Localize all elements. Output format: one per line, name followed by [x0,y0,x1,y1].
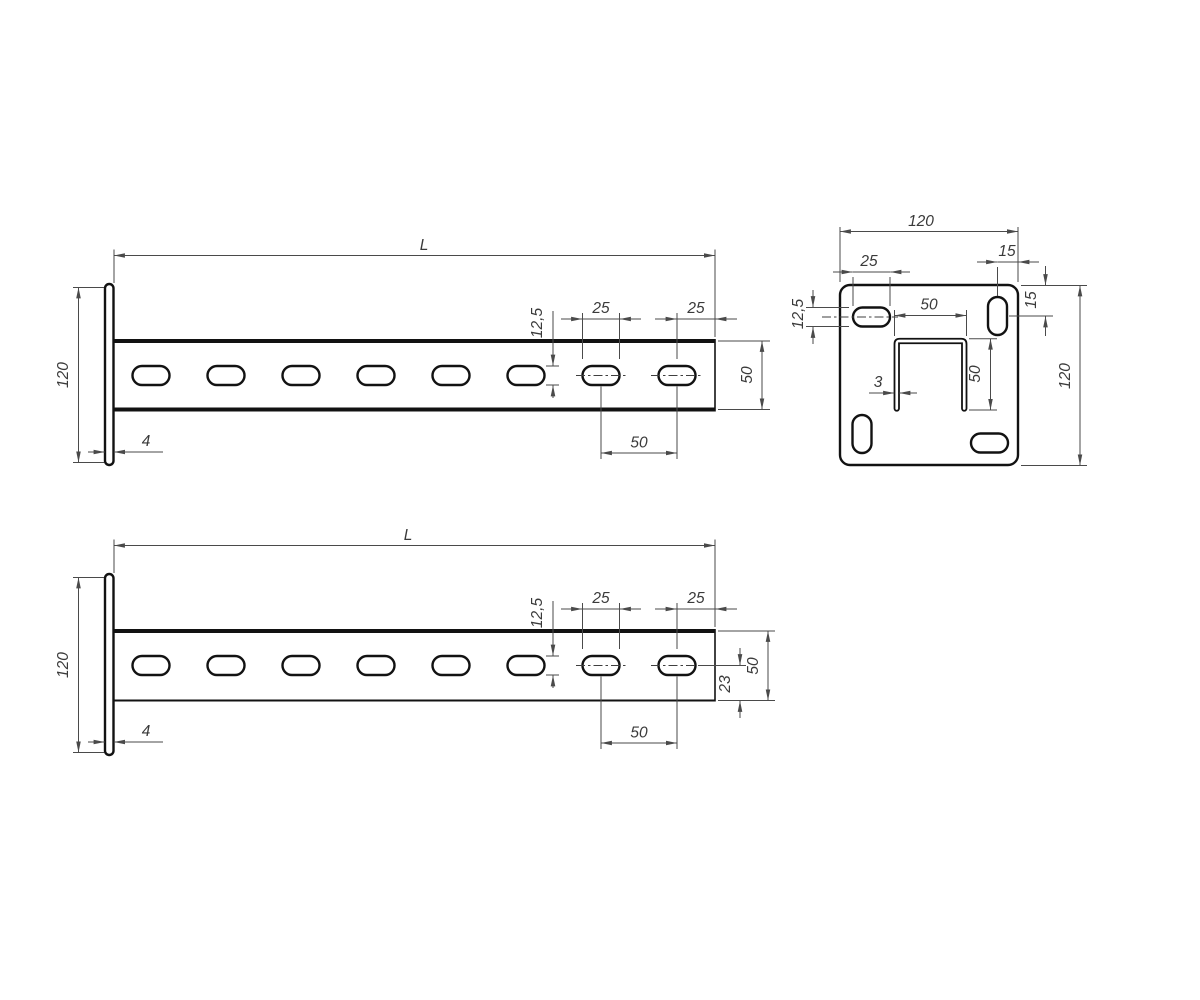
dim-plate-slot-length: 25 [859,253,878,270]
side-view-b-dimensions: L 120 4 12,5 25 [55,527,775,753]
side-view-a-body [105,284,715,465]
slot [208,366,245,385]
wall-flange [105,284,114,465]
dim-length-a: L [420,237,429,254]
slot-bottom-left [853,415,872,453]
dim-slot-length-b: 25 [591,590,610,607]
slot [433,366,470,385]
dim-profile-height-b: 50 [745,657,762,675]
dim-corner-slot-edge-offset: 15 [998,243,1016,260]
technical-drawing: L 120 4 12,5 25 [0,0,1200,1000]
slot [283,366,320,385]
slotted-holes-b [133,656,703,675]
dim-plate-height: 120 [1057,363,1074,389]
dim-slot-length-a: 25 [591,300,610,317]
dim-corner-slot-top-offset: 15 [1023,291,1040,309]
dim-flange-thickness-a: 4 [142,433,151,450]
slot [133,656,170,675]
side-view-a: L 120 4 12,5 25 [55,237,770,465]
dim-slot-pitch-a: 50 [630,435,648,452]
dim-channel-wall-thickness: 3 [874,374,883,391]
slot [508,656,545,675]
dim-end-distance-b: 25 [686,590,705,607]
dim-slot-center-to-bottom: 23 [717,675,734,694]
wall-flange [105,574,114,755]
dim-flange-thickness-b: 4 [142,723,151,740]
slot [358,656,395,675]
back-plate-view: 120 25 15 12,5 15 [790,213,1087,466]
slot [433,656,470,675]
slot [133,366,170,385]
dim-channel-width: 50 [920,297,938,314]
slot-top-right [988,297,1007,335]
side-view-b: L 120 4 12,5 25 [55,527,775,755]
dim-plate-width: 120 [908,213,934,230]
side-view-b-body [105,574,715,755]
slotted-holes-a [133,366,703,385]
dim-flange-height-b: 120 [55,652,72,678]
dim-slot-height-b: 12,5 [529,598,546,629]
dim-flange-height-a: 120 [55,362,72,388]
dim-end-distance-a: 25 [686,300,705,317]
drawing-sheet: L 120 4 12,5 25 [0,0,1200,1000]
slot [208,656,245,675]
dim-plate-slot-height: 12,5 [790,299,807,330]
slot [358,366,395,385]
dim-slot-height-a: 12,5 [529,308,546,339]
side-view-a-dimensions: L 120 4 12,5 25 [55,237,770,463]
slot [283,656,320,675]
dim-length-b: L [404,527,413,544]
slot-bottom-right [971,434,1008,453]
dim-slot-pitch-b: 50 [630,725,648,742]
dim-channel-depth: 50 [967,365,984,383]
dim-profile-height-a: 50 [739,366,756,384]
slot [508,366,545,385]
